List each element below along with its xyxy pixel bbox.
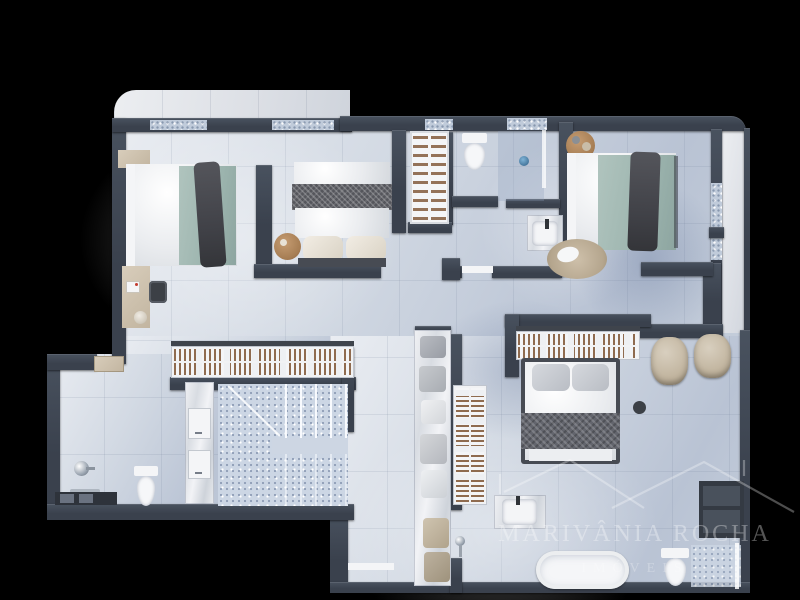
hangers: [174, 349, 351, 361]
bed-frame-edge: [674, 156, 678, 248]
hangers: [456, 388, 469, 502]
table-pot: [572, 136, 580, 144]
window: [150, 120, 207, 130]
bed-sheet: [295, 208, 389, 238]
stool: [633, 401, 646, 414]
round-rug: [547, 239, 607, 279]
toilet: [462, 133, 487, 143]
bed-blanket: [292, 184, 392, 210]
folded-clothes: [420, 434, 447, 464]
pillow: [532, 364, 570, 391]
desk-chair: [149, 281, 167, 303]
pillow: [572, 364, 609, 391]
book: [126, 281, 140, 293]
bed-headboard: [567, 153, 576, 251]
window: [507, 118, 547, 130]
cup: [134, 311, 147, 324]
shelf-column: [431, 135, 446, 220]
watermark-brand: MARIVÂNIA ROCHA: [455, 521, 800, 548]
wall-segment: [709, 227, 724, 238]
storage-niche: [55, 492, 117, 505]
shower-arm: [86, 467, 95, 470]
wall-segment: [392, 130, 406, 233]
overlapping-rooflines-icon: [492, 448, 800, 522]
service-column: [185, 382, 214, 504]
hangers: [518, 334, 638, 345]
double-bed: [294, 162, 390, 186]
hangers: [518, 347, 638, 358]
window: [425, 119, 453, 130]
folded-clothes: [419, 366, 446, 392]
pouf: [694, 334, 731, 378]
wall-segment: [47, 354, 97, 370]
stair-landing: [272, 438, 348, 454]
wall-segment: [47, 504, 354, 520]
service-door: [188, 408, 211, 439]
bed-throw-blanket: [627, 152, 660, 252]
wall-segment: [450, 558, 462, 593]
shower-floor: [498, 131, 544, 201]
bed-frame: [298, 258, 386, 267]
wall-segment: [256, 165, 272, 265]
hangers: [471, 388, 484, 502]
folded-clothes: [424, 552, 450, 582]
shower-glass: [542, 130, 546, 188]
hangers: [174, 363, 351, 375]
wall-segment: [442, 258, 460, 280]
table-pot: [582, 142, 591, 151]
shelf-column: [413, 135, 428, 220]
faucet: [545, 219, 549, 229]
watermark-tagline: IMÓVEIS: [525, 561, 745, 577]
folded-clothes: [423, 518, 449, 548]
folded-clothes: [421, 400, 446, 424]
stair-lower-flight: [272, 454, 348, 506]
shower-drain: [519, 156, 529, 166]
bed-headboard: [126, 164, 135, 266]
wall-segment: [452, 196, 498, 207]
round-side-table: [274, 233, 301, 260]
door-leaf: [462, 266, 493, 273]
door-leaf: [348, 563, 394, 570]
doormat: [94, 356, 124, 372]
folded-clothes: [421, 470, 447, 498]
stair-upper-flight: [272, 384, 348, 438]
toilet: [134, 466, 158, 476]
service-door: [188, 450, 211, 479]
pouf: [651, 337, 688, 385]
wall-segment: [641, 262, 713, 276]
window: [711, 183, 722, 260]
wall-segment: [330, 582, 750, 593]
wall-segment: [744, 128, 750, 335]
bed-blanket: [521, 413, 620, 449]
toilet: [661, 548, 689, 558]
folded-clothes: [420, 336, 446, 358]
wall-segment: [330, 512, 348, 593]
window: [272, 120, 334, 130]
floor-plan-render: MARIVÂNIA ROCHA IMÓVEIS: [0, 0, 800, 600]
